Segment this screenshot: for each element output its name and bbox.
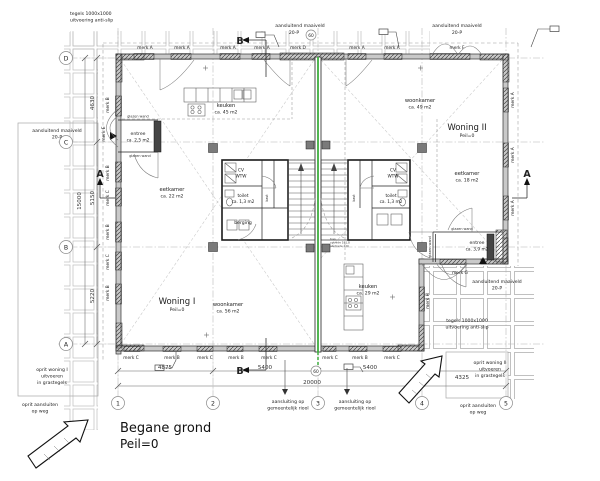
room-woonkamer1-area: ca. 56 m2	[217, 309, 240, 315]
front-door-woning1	[154, 121, 161, 152]
room-entree1-area: ca. 2,5 m2	[127, 138, 150, 144]
room-entree1: entree	[131, 131, 146, 137]
note-maaiveld-topright-2: 20-P	[452, 30, 463, 36]
grid-row-c: C	[64, 140, 68, 147]
note-maaiveld-topcenter-2: 20-P	[289, 30, 300, 36]
grid-col-5: 5	[504, 401, 508, 408]
merk-label: merk B	[105, 224, 111, 239]
party-wall	[315, 57, 321, 370]
woning1-peil: Peil=0	[170, 307, 185, 313]
party-wall-green-line	[317, 57, 319, 352]
note-oprit1-1: oprit woning I	[36, 367, 68, 373]
merk-label: merk A	[174, 45, 189, 51]
note-opritweg-right-1: oprit aansluiten	[460, 403, 496, 409]
merk-label: merk C	[105, 190, 111, 205]
floorplan-canvas: 1 2 3 4 5 D C B A 60 60 merk A merk A me…	[0, 0, 600, 481]
dim-20000: 20000	[303, 380, 321, 386]
room-eetkamer2-area: ca. 18 m2	[456, 178, 479, 184]
tile-strip-left	[64, 32, 98, 430]
floorplan-drawing: 1 2 3 4 5 D C B A 60 60 merk A merk A me…	[0, 0, 600, 481]
section-a-label-left: A	[96, 169, 104, 180]
room-eetkamer1: eetkamer	[160, 187, 186, 193]
dim-5220: 5220	[90, 288, 96, 303]
note-maaiveld-topright-1: aansluitend maaiveld	[432, 23, 482, 29]
room-eetkamer2: eetkamer	[455, 171, 481, 177]
merk-label: merk B	[164, 355, 179, 361]
section-a-label-right: A	[523, 169, 531, 180]
room-keuken1: keuken	[217, 103, 236, 109]
dim-5400b: 5400	[363, 365, 378, 371]
note-trap-3: aantrede 220	[330, 244, 349, 248]
room-keuken2: keuken	[359, 284, 378, 290]
note-glazenwand-2a: glazen wand	[451, 227, 472, 231]
section-b-label-top: B	[236, 36, 243, 47]
page-subtitle: Peil=0	[120, 437, 159, 451]
merk-label: merk H	[425, 293, 431, 309]
merk-label: merk A	[510, 92, 516, 107]
woning2-name: Woning II	[447, 123, 486, 133]
room-cv1: CV	[238, 168, 244, 174]
tile-strip-top	[70, 31, 430, 56]
grid-col-3: 3	[316, 401, 320, 408]
merk-label: merk A	[384, 45, 399, 51]
staircase-woning2	[321, 160, 348, 240]
room-wtw1: WTW	[235, 174, 247, 180]
note-tiles-top-1: tegels 1000x1000	[70, 11, 112, 17]
grid-col-2: 2	[211, 401, 215, 408]
note-sewer-right-1: aansluiting op	[339, 399, 372, 405]
room-woonkamer2: woonkamer	[405, 98, 436, 104]
note-oprit2-3: in grastegels	[475, 373, 505, 379]
room-toilet2-area: ca. 1,3 m2	[380, 199, 403, 205]
merk-label: merk A	[349, 45, 364, 51]
staircase-woning1	[288, 160, 315, 240]
woning2-peil: Peil=0	[460, 133, 475, 139]
note-glazenwand-1b: glazen wand	[129, 154, 150, 158]
merk-label: merk B	[105, 165, 111, 180]
room-kast2: kast	[352, 194, 356, 202]
title-block: Begane grond Peil=0	[120, 421, 211, 451]
driveway-arrow-woning2	[399, 356, 442, 403]
merk-label: merk C	[105, 254, 111, 269]
merk-label: merk A	[137, 45, 152, 51]
grid-row-b: B	[64, 245, 68, 252]
room-keuken1-area: ca. 45 m2	[215, 110, 238, 116]
note-maaiveld-right-2: 20-P	[492, 286, 503, 292]
dim-4630: 4630	[90, 95, 96, 110]
note-oprit1-3: in grastegels	[37, 380, 67, 386]
woning1-name: Woning I	[159, 297, 196, 307]
merk-label: merk B	[228, 355, 243, 361]
dim-4875: 4875	[158, 365, 173, 371]
merk-label: merk D	[290, 45, 306, 51]
merk-label: merk C	[322, 355, 337, 361]
note-opritweg-left-1: oprit aansluiten	[22, 402, 58, 408]
note-maaiveld-left-1: aansluitend maaiveld	[32, 128, 82, 134]
sewer-arrow-1	[282, 389, 288, 395]
room-entree2-area: ca. 3,9 m2	[466, 247, 489, 253]
page-title: Begane grond	[120, 421, 211, 436]
drain-60-top: 60	[308, 33, 314, 39]
dim-5400: 5400	[258, 365, 273, 371]
merk-label: merk C	[384, 355, 399, 361]
dim-15000: 15000	[77, 192, 83, 210]
note-sewer-left-2: gemeentelijk riool	[267, 406, 308, 412]
room-keuken2-area: ca. 29 m2	[357, 291, 380, 297]
room-kast1: kast	[265, 194, 269, 202]
note-oprit2-2: uitvoeren	[479, 367, 501, 373]
room-cv2: CV	[390, 168, 396, 174]
sewer-connections	[282, 360, 350, 395]
merk-label: merk B	[105, 285, 111, 300]
driveway-arrow-woning1	[28, 420, 88, 468]
dim-4325: 4325	[455, 375, 470, 381]
note-maaiveld-topcenter-1: aansluitend maaiveld	[275, 23, 325, 29]
note-oprit2-1: oprit woning II	[474, 360, 507, 366]
merk-label: merk B	[352, 355, 367, 361]
merk-label: merk G	[452, 270, 468, 276]
room-wtw2: WTW	[387, 174, 399, 180]
section-b-label-bottom: B	[236, 366, 243, 377]
note-maaiveld-left-2: 20-P	[52, 135, 63, 141]
note-opritweg-left-2: op weg	[32, 410, 49, 415]
room-berging1: berging	[234, 220, 252, 226]
merk-label: merk E	[101, 126, 107, 141]
merk-label: merk C	[197, 355, 212, 361]
merk-label: merk A	[510, 147, 516, 162]
note-tiles-top-2: uitvoering anti-slip	[70, 18, 113, 24]
sewer-arrow-2	[344, 389, 350, 395]
note-maaiveld-right-1: aansluitend maaiveld	[472, 279, 522, 285]
note-sewer-right-2: gemeentelijk riool	[334, 406, 375, 412]
room-toilet2: toilet	[385, 193, 396, 199]
merk-label: merk C	[123, 355, 138, 361]
note-glazenwand-2b: glazen wand	[428, 236, 432, 257]
merk-label: merk C	[261, 355, 276, 361]
note-glazenwand-1a: glazen wand	[127, 115, 148, 119]
note-tiles-br-1: tegels 1000x1000	[446, 318, 488, 324]
grid-col-1: 1	[116, 401, 120, 408]
note-oprit1-2: uitvoeren	[41, 374, 63, 380]
grid-col-4: 4	[420, 401, 424, 408]
drain-60-bottom: 60	[313, 369, 319, 375]
merk-label: merk F	[450, 45, 465, 51]
room-woonkamer2-area: ca. 49 m2	[409, 105, 432, 111]
room-toilet1: toilet	[237, 193, 248, 199]
room-toilet1-area: ca. 1,3 m2	[232, 199, 255, 205]
kitchen-woning2	[344, 264, 363, 330]
dim-5150: 5150	[90, 190, 96, 205]
room-entree2: entree	[470, 240, 485, 246]
note-opritweg-right-2: op weg	[470, 411, 487, 416]
grid-row-d: D	[64, 56, 69, 63]
note-sewer-left-1: aansluiting op	[272, 399, 305, 405]
room-woonkamer1: woonkamer	[213, 302, 244, 308]
merk-label: merk A	[254, 45, 269, 51]
merk-label: merk B	[105, 97, 111, 112]
tile-strip-bottom-right	[508, 352, 534, 399]
merk-label: merk A	[220, 45, 235, 51]
merk-label: merk A	[510, 200, 516, 215]
note-tiles-br-2: uitvoering anti-slip	[445, 325, 488, 331]
room-eetkamer1-area: ca. 22 m2	[161, 194, 184, 200]
